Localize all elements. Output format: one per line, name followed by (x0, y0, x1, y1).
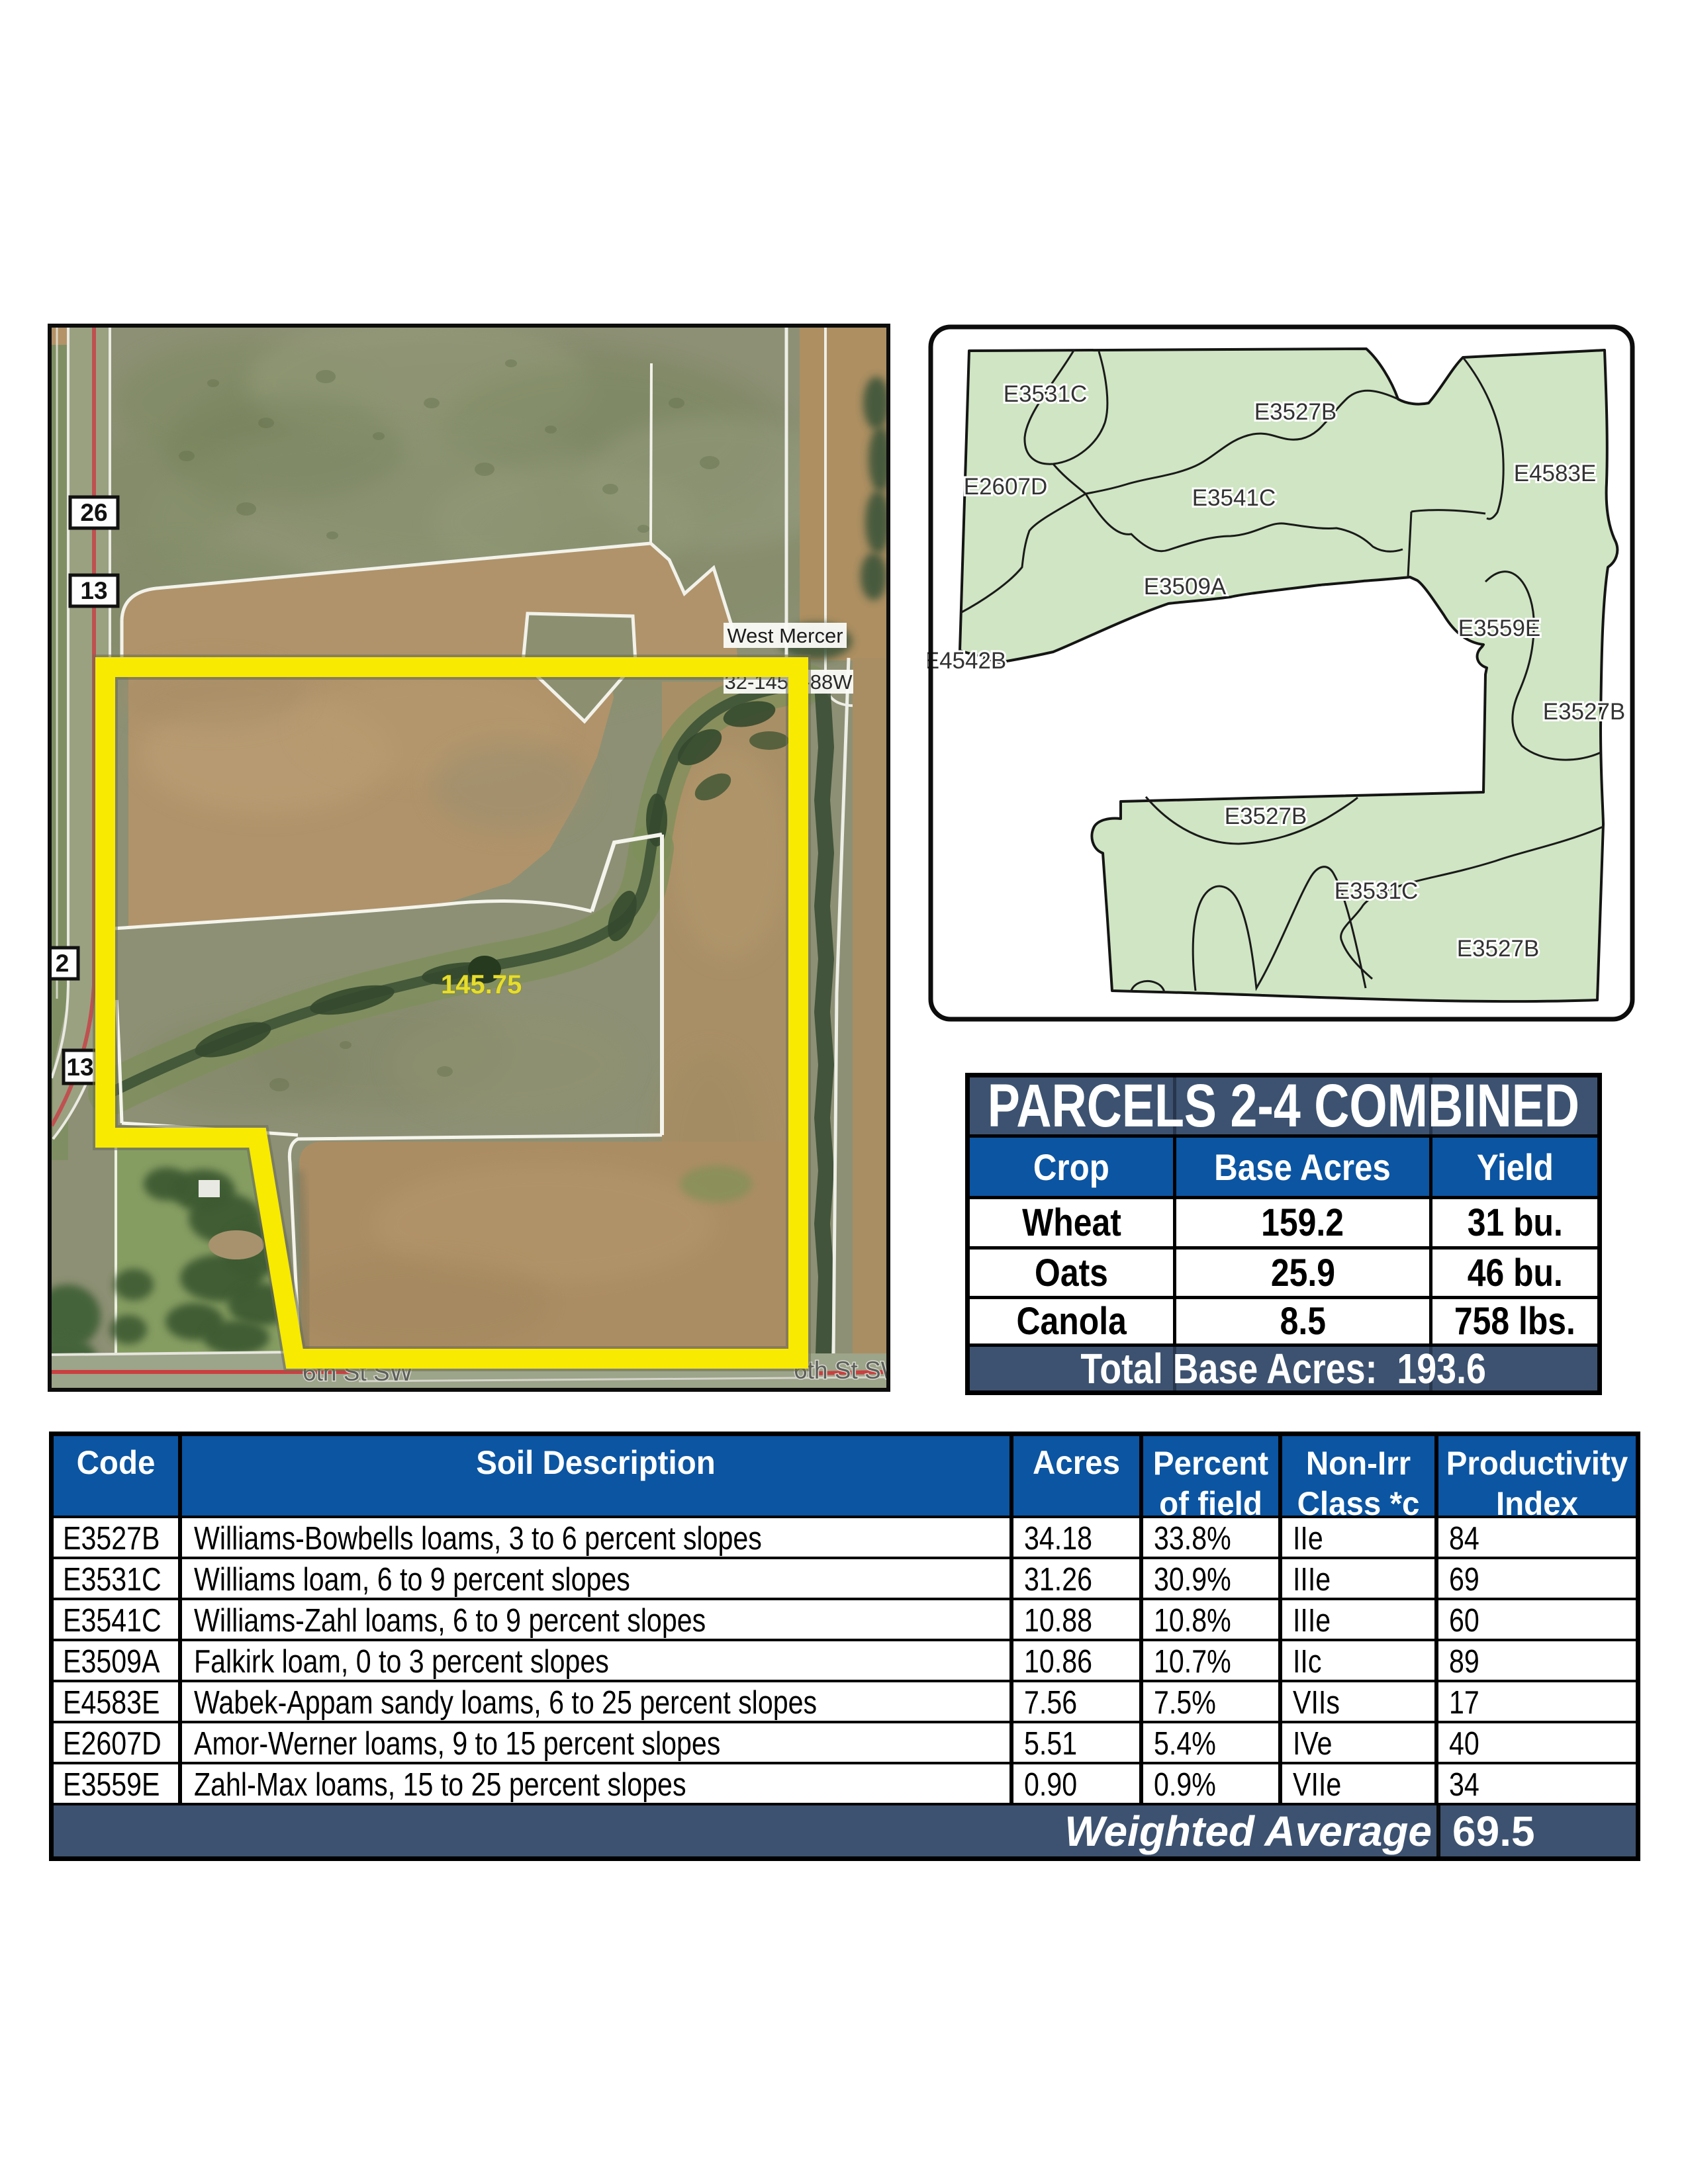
svg-text:E3531C: E3531C (1004, 381, 1087, 407)
svg-text:E3527B: E3527B (1225, 803, 1307, 829)
svg-text:2: 2 (56, 950, 70, 977)
svg-text:145.75: 145.75 (441, 970, 522, 999)
svg-text:E3509A: E3509A (1144, 574, 1227, 600)
svg-text:E3527B: E3527B (1457, 936, 1540, 962)
svg-text:E2607D: E2607D (964, 474, 1047, 500)
svg-text:13: 13 (66, 1054, 93, 1081)
svg-text:E4583E: E4583E (1514, 461, 1597, 486)
svg-text:E3559E: E3559E (1458, 615, 1541, 641)
svg-text:E3527B: E3527B (1543, 699, 1626, 725)
svg-text:13: 13 (80, 577, 107, 604)
svg-text:E4542B: E4542B (927, 648, 1006, 674)
svg-text:E3541C: E3541C (1192, 485, 1276, 511)
svg-text:E3531C: E3531C (1335, 878, 1418, 904)
svg-text:E3527B: E3527B (1254, 399, 1337, 425)
svg-text:26: 26 (80, 499, 107, 526)
svg-text:West Mercer: West Mercer (727, 624, 843, 647)
